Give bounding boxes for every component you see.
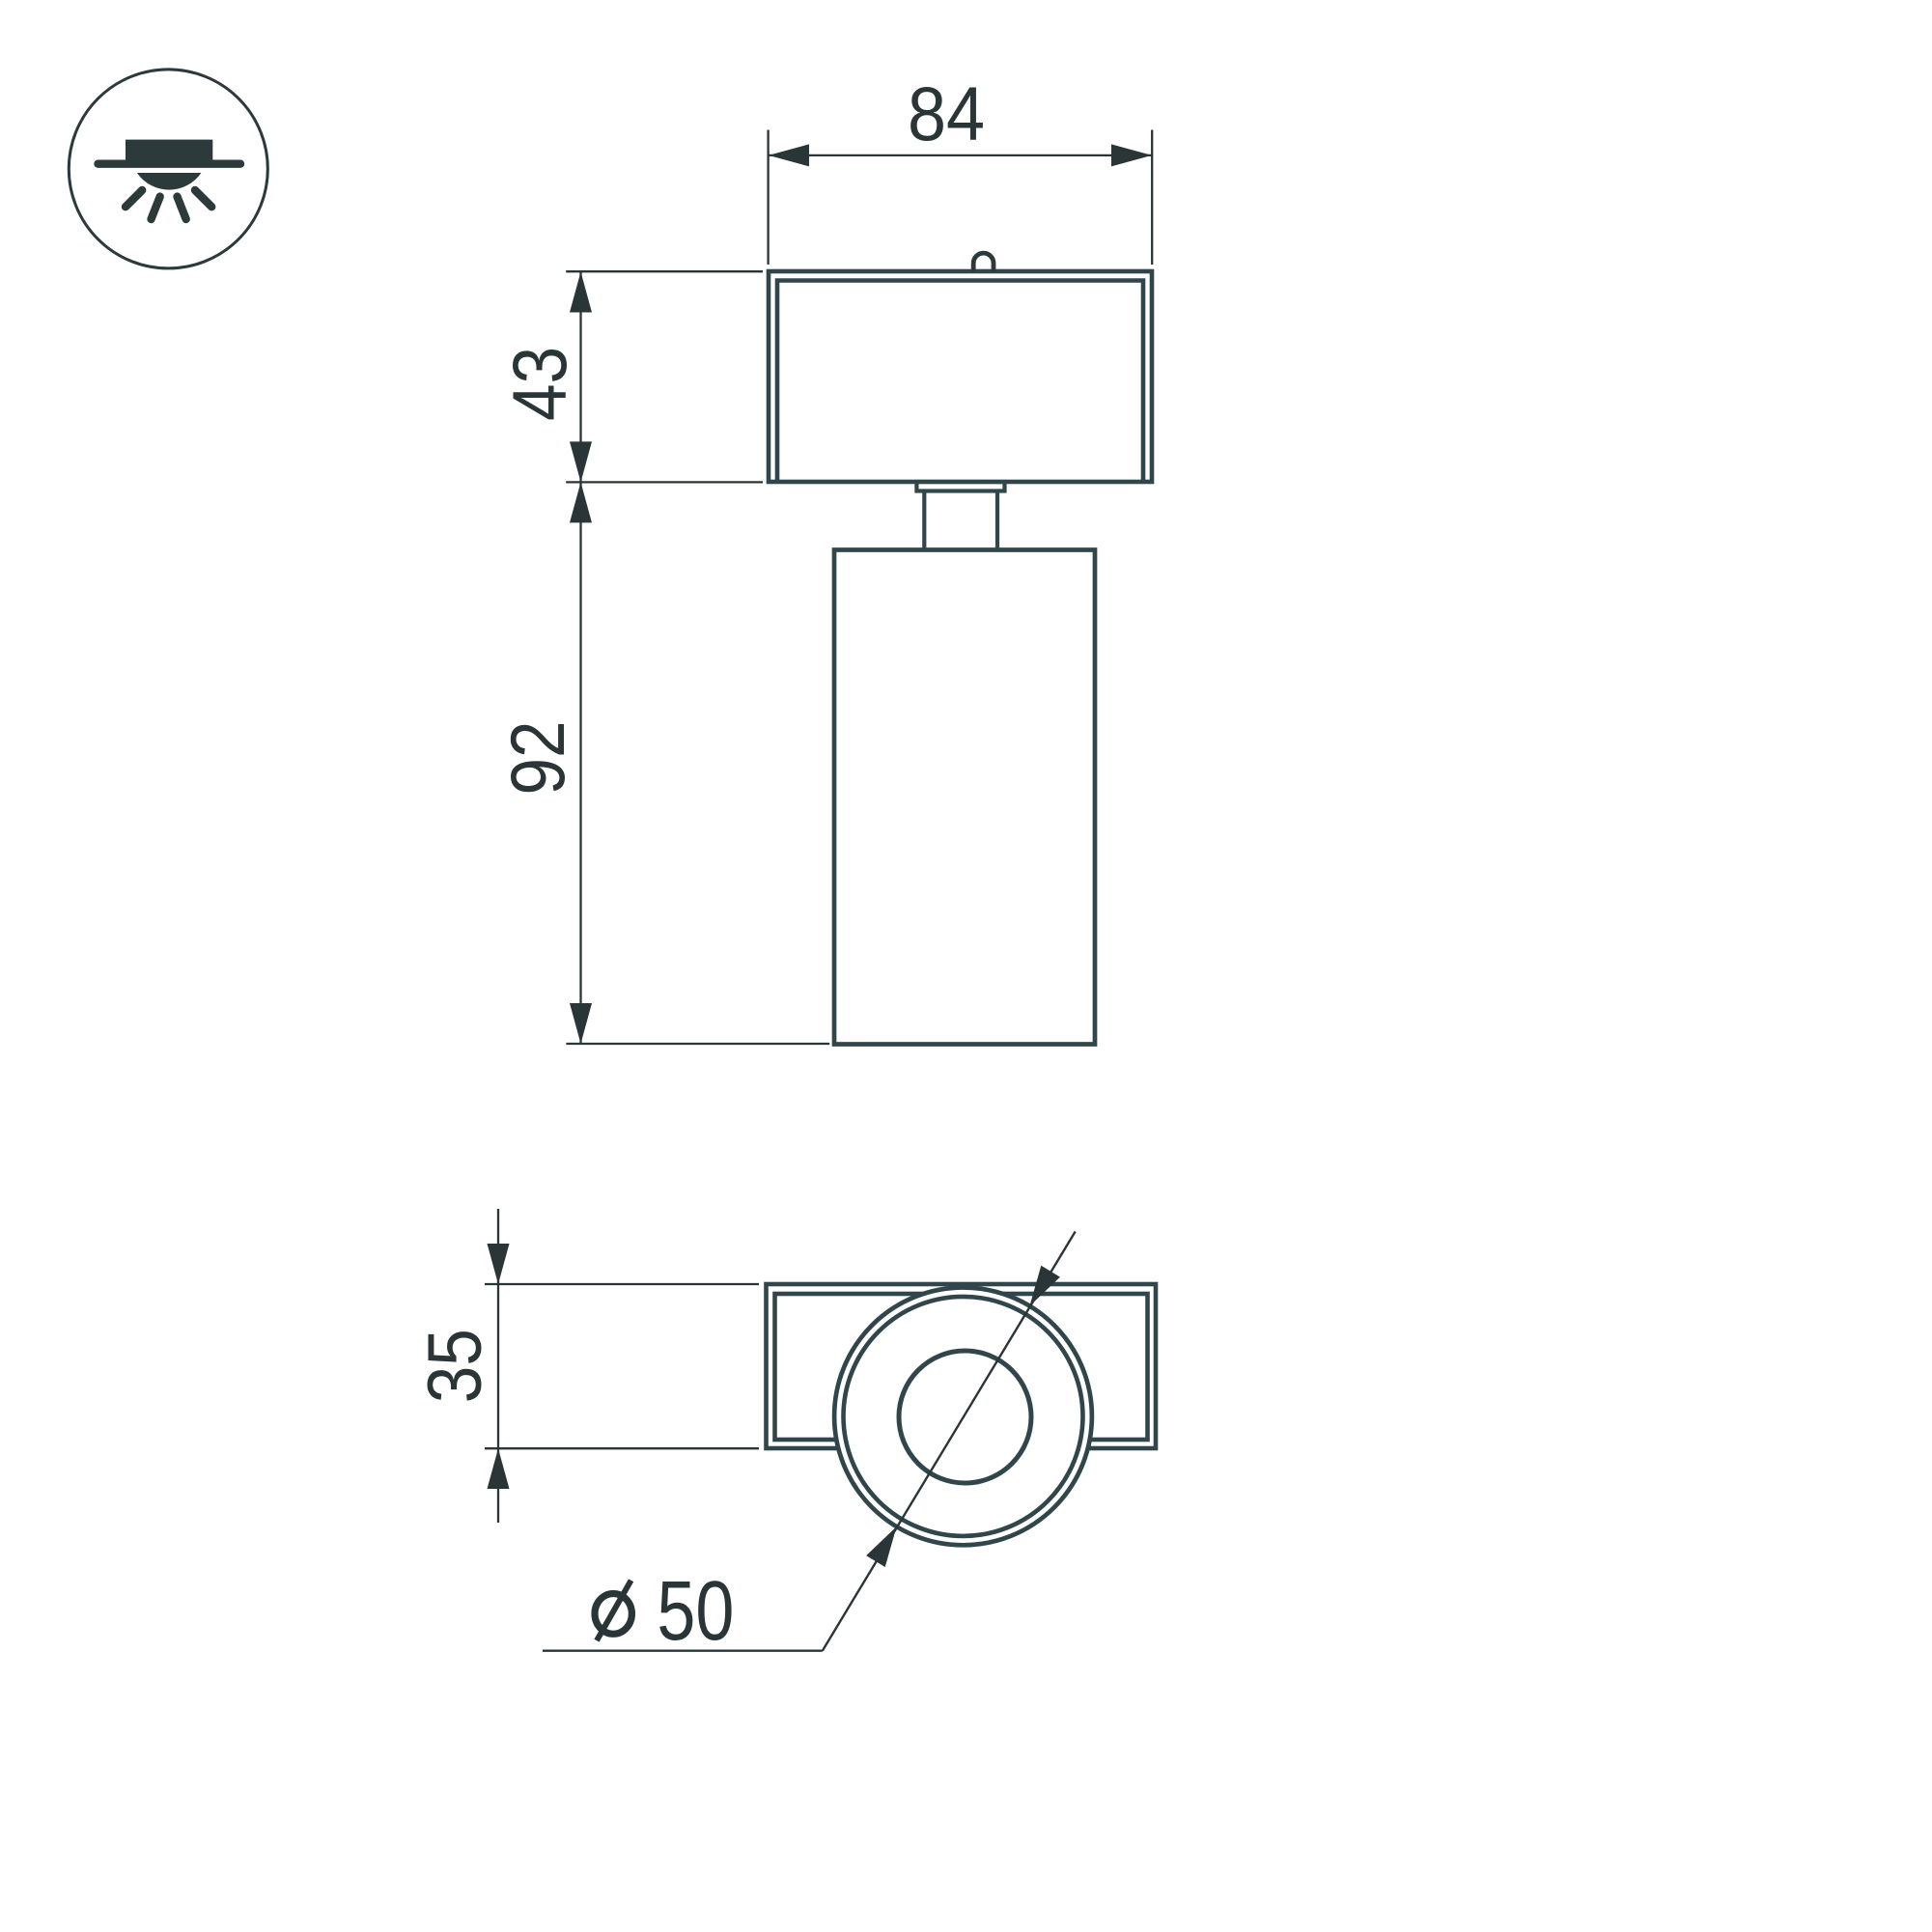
- svg-text:50: 50: [657, 1564, 734, 1658]
- svg-text:35: 35: [411, 1329, 497, 1403]
- svg-text:92: 92: [494, 721, 580, 796]
- svg-text:84: 84: [908, 70, 985, 156]
- svg-text:43: 43: [496, 347, 582, 421]
